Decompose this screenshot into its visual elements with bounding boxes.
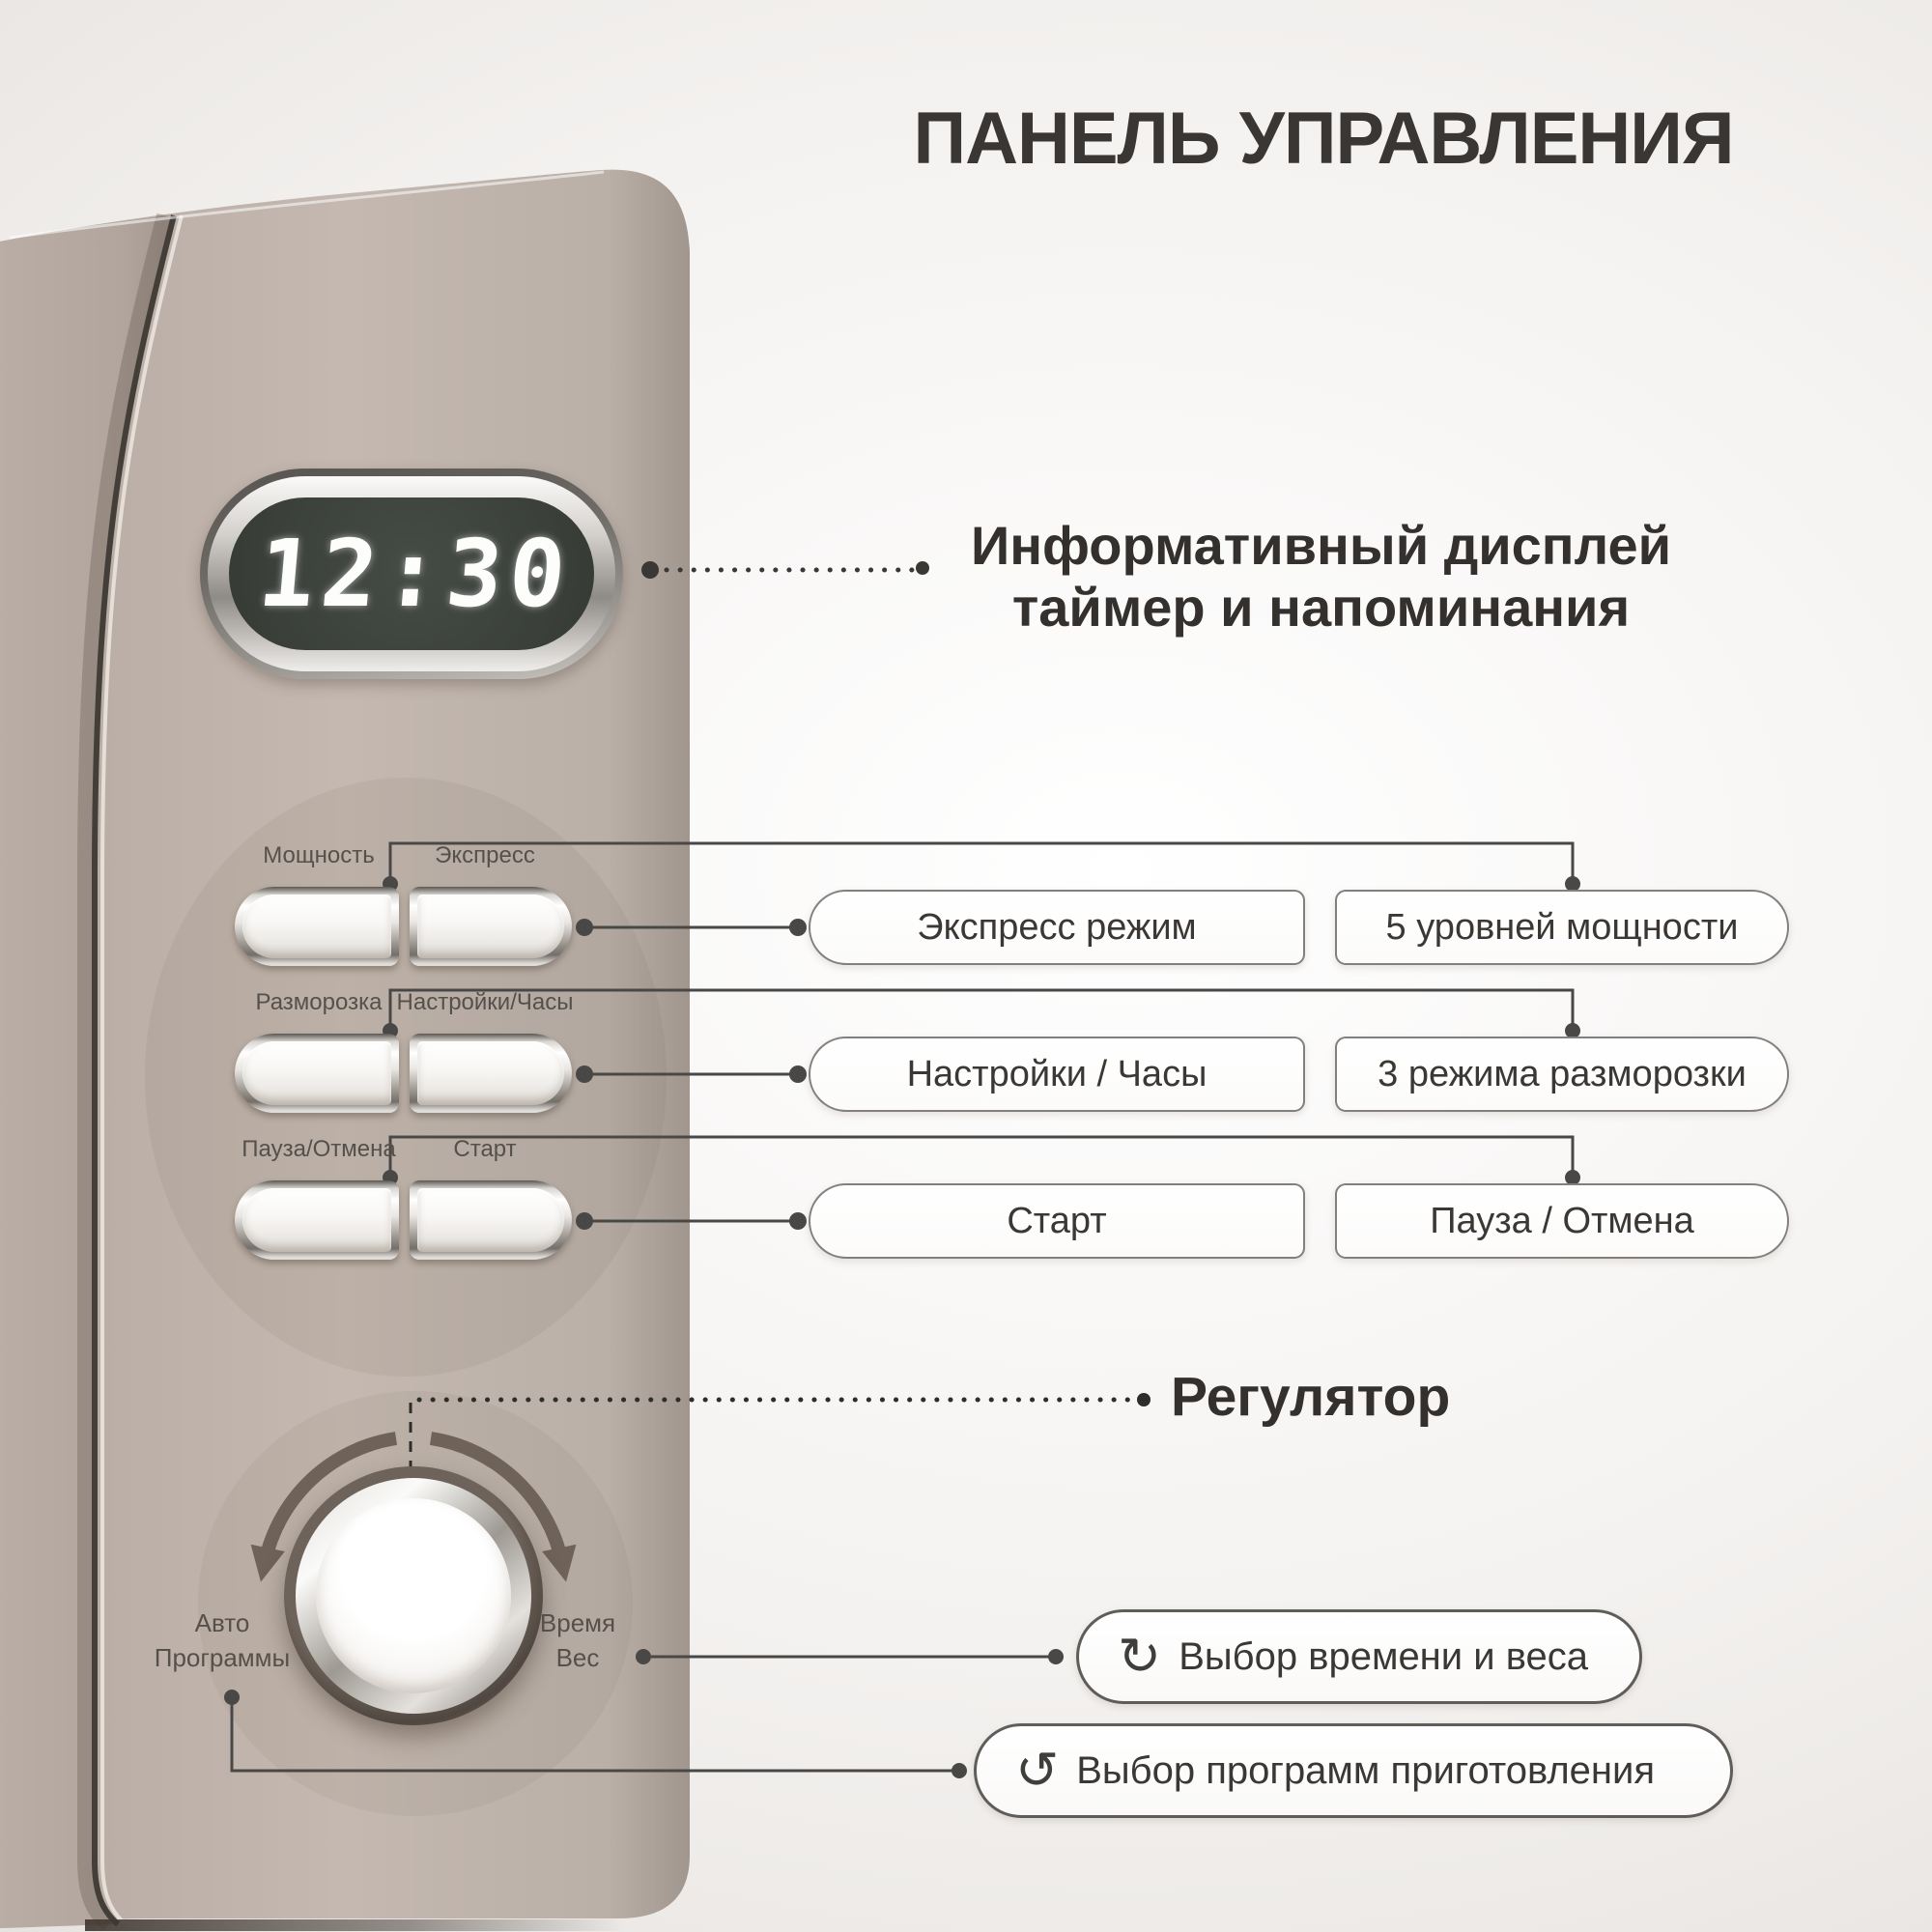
- express-button[interactable]: [410, 887, 572, 966]
- rotate-ccw-icon: ↺: [1015, 1745, 1059, 1797]
- display-time: 12:30: [246, 520, 577, 628]
- callout-program-selection: ↺ Выбор программ приготовления: [974, 1723, 1733, 1818]
- power-button-face: [242, 895, 391, 958]
- display-chrome-ring: 12:30: [208, 476, 615, 671]
- callout-defrost-modes: 3 режима разморозки: [1335, 1037, 1789, 1112]
- label-settings-clock: Настройки/Часы: [379, 989, 591, 1016]
- page-title: ПАНЕЛЬ УПРАВЛЕНИЯ: [715, 97, 1932, 188]
- callout-time-weight-selection: ↻ Выбор времени и веса: [1076, 1609, 1642, 1704]
- start-button[interactable]: [410, 1180, 572, 1260]
- defrost-button[interactable]: [235, 1034, 399, 1113]
- base-shadow-strip: [85, 1919, 626, 1931]
- knob-label-time-weight: Время Вес: [471, 1605, 684, 1675]
- callout-power-levels: 5 уровней мощности: [1335, 890, 1789, 965]
- pause-cancel-button-face: [242, 1188, 391, 1252]
- defrost-button-face: [242, 1041, 391, 1105]
- knob-label-weight: Вес: [471, 1640, 684, 1675]
- display-callout-line1: Информативный дисплей: [927, 515, 1715, 577]
- label-express: Экспресс: [379, 842, 591, 869]
- power-button[interactable]: [235, 887, 399, 966]
- infographic-page: ПАНЕЛЬ УПРАВЛЕНИЯ 12:30 Информативный ди…: [0, 0, 1932, 1932]
- display-callout-line2: таймер и напоминания: [927, 577, 1715, 639]
- express-button-face: [417, 895, 564, 958]
- display-callout-text: Информативный дисплей таймер и напоминан…: [927, 515, 1715, 639]
- knob-label-auto-programs: Авто Программы: [116, 1605, 328, 1675]
- rotate-cw-icon: ↻: [1118, 1631, 1161, 1683]
- callout-time-weight-text: Выбор времени и веса: [1179, 1635, 1588, 1679]
- display-bezel: 12:30: [200, 469, 623, 679]
- knob-label-time: Время: [471, 1605, 684, 1640]
- display-screen: 12:30: [229, 497, 594, 650]
- pause-cancel-button[interactable]: [235, 1180, 399, 1260]
- regulator-callout-label: Регулятор: [1171, 1365, 1450, 1429]
- callout-express-mode: Экспресс режим: [809, 890, 1305, 965]
- callout-settings-clock: Настройки / Часы: [809, 1037, 1305, 1112]
- label-start: Старт: [379, 1136, 591, 1163]
- start-button-face: [417, 1188, 564, 1252]
- callout-start: Старт: [809, 1183, 1305, 1259]
- callout-pause-cancel: Пауза / Отмена: [1335, 1183, 1789, 1259]
- settings-clock-button[interactable]: [410, 1034, 572, 1113]
- knob-label-programs: Программы: [116, 1640, 328, 1675]
- settings-clock-button-face: [417, 1041, 564, 1105]
- knob-label-auto: Авто: [116, 1605, 328, 1640]
- callout-program-selection-text: Выбор программ приготовления: [1076, 1749, 1655, 1793]
